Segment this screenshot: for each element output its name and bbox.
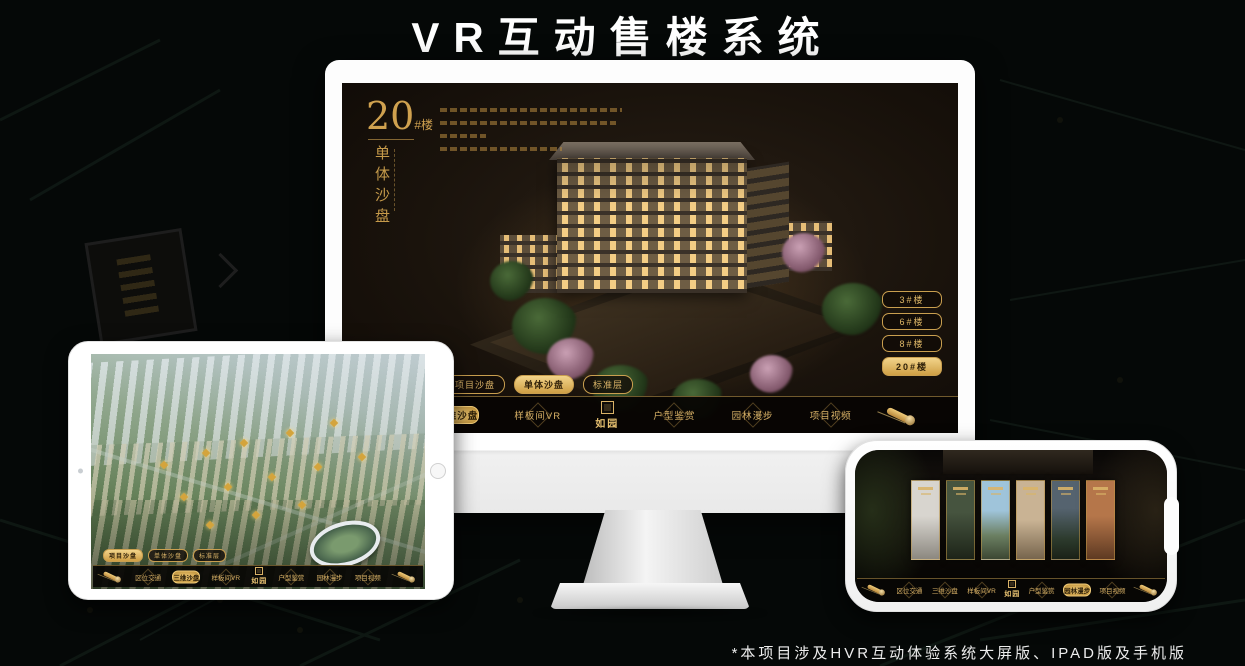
nav-item-label: 园林漫步 — [1064, 588, 1090, 595]
description-paragraph — [440, 108, 622, 160]
nav-item-label: 园林漫步 — [732, 411, 774, 422]
nav-item-project-video[interactable]: 项目视频 — [808, 404, 854, 426]
tablet-bezel: 项目沙盘 单体沙盘 标准层 区位交通 三维沙盘 样板间VR 如园 户型鉴赏 园林… — [68, 341, 454, 600]
brand-logo: 如园 — [251, 567, 267, 586]
tablet-navbar: 区位交通 三维沙盘 样板间VR 如园 户型鉴赏 园林漫步 项目视频 — [93, 565, 423, 587]
tablet-home-button[interactable] — [430, 463, 446, 479]
tab-project-sandtable[interactable]: 项目沙盘 — [445, 375, 505, 394]
tablet-tab-project-sandtable[interactable]: 项目沙盘 — [103, 549, 143, 562]
stage: VR互动售楼系统 — [0, 0, 1245, 666]
pink-tree — [782, 233, 826, 273]
gallery-panel-6[interactable] — [1086, 480, 1115, 560]
nav-item-label: 户型鉴赏 — [653, 411, 695, 422]
footnote: *本项目涉及HVR互动体验系统大屏版、IPAD版及手机版 — [732, 642, 1187, 663]
gallery-panel-5[interactable] — [1051, 480, 1080, 560]
page-title: VR互动售楼系统 — [0, 4, 1245, 65]
scroll-menu-icon[interactable] — [867, 584, 883, 595]
nav-item-label: 三维沙盘 — [932, 588, 958, 595]
section-headline: 20#楼 单体沙盘 — [366, 97, 433, 229]
nav-item-label: 区位交通 — [135, 575, 161, 582]
nav-item-location[interactable]: 区位交通 — [134, 570, 162, 584]
scroll-menu-icon[interactable] — [103, 571, 119, 582]
scroll-menu-icon[interactable] — [397, 571, 413, 582]
nav-item-label: 样板间VR — [212, 575, 241, 582]
tree — [822, 283, 884, 335]
tab-single-sandtable[interactable]: 单体沙盘 — [514, 375, 574, 394]
nav-item-model-room-vr[interactable]: 样板间VR — [211, 570, 242, 584]
brand-logo: 如园 — [1004, 580, 1020, 599]
nav-item-location[interactable]: 区位交通 — [895, 583, 923, 597]
floor-button-3[interactable]: 3#楼 — [882, 291, 942, 308]
wall-picture-frame — [84, 228, 197, 346]
floor-button-8[interactable]: 8#楼 — [882, 335, 942, 352]
nav-item-label: 园林漫步 — [317, 575, 343, 582]
floor-button-group: 3#楼 6#楼 8#楼 20#楼 — [882, 291, 942, 376]
logo-text: 如园 — [1004, 589, 1020, 599]
logo-text: 如园 — [251, 576, 267, 586]
ceiling-beam — [943, 450, 1093, 474]
gallery-panel-3[interactable] — [981, 480, 1010, 560]
monitor-shadow — [530, 607, 770, 619]
nav-item-label: 户型鉴赏 — [1029, 588, 1055, 595]
gallery-panel-2[interactable] — [946, 480, 975, 560]
pink-tree — [750, 355, 794, 393]
building-side — [747, 162, 789, 289]
nav-item-garden-walk[interactable]: 园林漫步 — [1063, 583, 1091, 597]
gallery-panel-4[interactable] — [1016, 480, 1045, 560]
headline-vertical-title: 单体沙盘 — [372, 145, 393, 229]
nav-item-model-room-vr[interactable]: 样板间VR — [966, 583, 997, 597]
nav-item-label: 三维沙盘 — [173, 575, 199, 582]
nav-item-model-room-vr[interactable]: 样板间VR — [512, 404, 563, 426]
phone-bezel: 区位交通 三维沙盘 样板间VR 如园 户型鉴赏 园林漫步 项目视频 — [845, 440, 1177, 612]
logo-seal-icon — [255, 567, 263, 575]
nav-item-unit-plans[interactable]: 户型鉴赏 — [1028, 583, 1056, 597]
logo-seal-icon — [601, 401, 614, 414]
tree — [490, 261, 534, 301]
nav-item-3d-sandtable[interactable]: 三维沙盘 — [931, 583, 959, 597]
nav-item-3d-sandtable[interactable]: 三维沙盘 — [172, 570, 200, 584]
nav-item-garden-walk[interactable]: 园林漫步 — [316, 570, 344, 584]
phone-device: 区位交通 三维沙盘 样板间VR 如园 户型鉴赏 园林漫步 项目视频 — [845, 440, 1177, 612]
tablet-tab-single-sandtable[interactable]: 单体沙盘 — [148, 549, 188, 562]
nav-item-label: 户型鉴赏 — [278, 575, 304, 582]
headline-deco-line — [394, 149, 395, 211]
tab-standard-floor[interactable]: 标准层 — [583, 375, 633, 394]
phone-notch — [1164, 497, 1179, 555]
tablet-subtabs: 项目沙盘 单体沙盘 标准层 — [103, 549, 226, 562]
building-number: 20 — [366, 94, 414, 138]
nav-item-project-video[interactable]: 项目视频 — [1098, 583, 1126, 597]
nav-item-unit-plans[interactable]: 户型鉴赏 — [651, 404, 697, 426]
nav-item-garden-walk[interactable]: 园林漫步 — [730, 404, 776, 426]
floor-button-20[interactable]: 20#楼 — [882, 357, 942, 376]
nav-item-label: 项目视频 — [355, 575, 381, 582]
phone-navbar: 区位交通 三维沙盘 样板间VR 如园 户型鉴赏 园林漫步 项目视频 — [857, 578, 1165, 600]
tablet-tab-standard-floor[interactable]: 标准层 — [193, 549, 226, 562]
nav-item-label: 样板间VR — [967, 588, 996, 595]
floor-button-6[interactable]: 6#楼 — [882, 313, 942, 330]
headline-rule — [368, 139, 414, 140]
logo-text: 如园 — [595, 415, 619, 430]
nav-item-label: 项目视频 — [1099, 588, 1125, 595]
logo-seal-icon — [1008, 580, 1016, 588]
brand-logo: 如园 — [595, 401, 619, 430]
nav-item-label: 区位交通 — [896, 588, 922, 595]
nav-item-project-video[interactable]: 项目视频 — [354, 570, 382, 584]
building-unit: #楼 — [414, 118, 433, 132]
phone-screen: 区位交通 三维沙盘 样板间VR 如园 户型鉴赏 园林漫步 项目视频 — [855, 450, 1167, 602]
building-front — [557, 158, 747, 293]
tablet-camera-icon — [78, 468, 83, 473]
nav-item-label: 样板间VR — [514, 411, 561, 422]
nav-item-unit-plans[interactable]: 户型鉴赏 — [277, 570, 305, 584]
tablet-device: 项目沙盘 单体沙盘 标准层 区位交通 三维沙盘 样板间VR 如园 户型鉴赏 园林… — [68, 341, 454, 600]
pink-tree — [547, 338, 595, 380]
scroll-menu-icon[interactable] — [1139, 584, 1155, 595]
scroll-menu-icon[interactable] — [886, 406, 912, 424]
monitor-stand-neck — [583, 510, 723, 585]
nav-item-label: 项目视频 — [810, 411, 852, 422]
monitor-stand-base — [550, 583, 750, 609]
tablet-screen: 项目沙盘 单体沙盘 标准层 区位交通 三维沙盘 样板间VR 如园 户型鉴赏 园林… — [91, 354, 425, 589]
sandtable-subtabs: 项目沙盘 单体沙盘 标准层 — [445, 375, 633, 394]
gallery-panel-1[interactable] — [911, 480, 940, 560]
